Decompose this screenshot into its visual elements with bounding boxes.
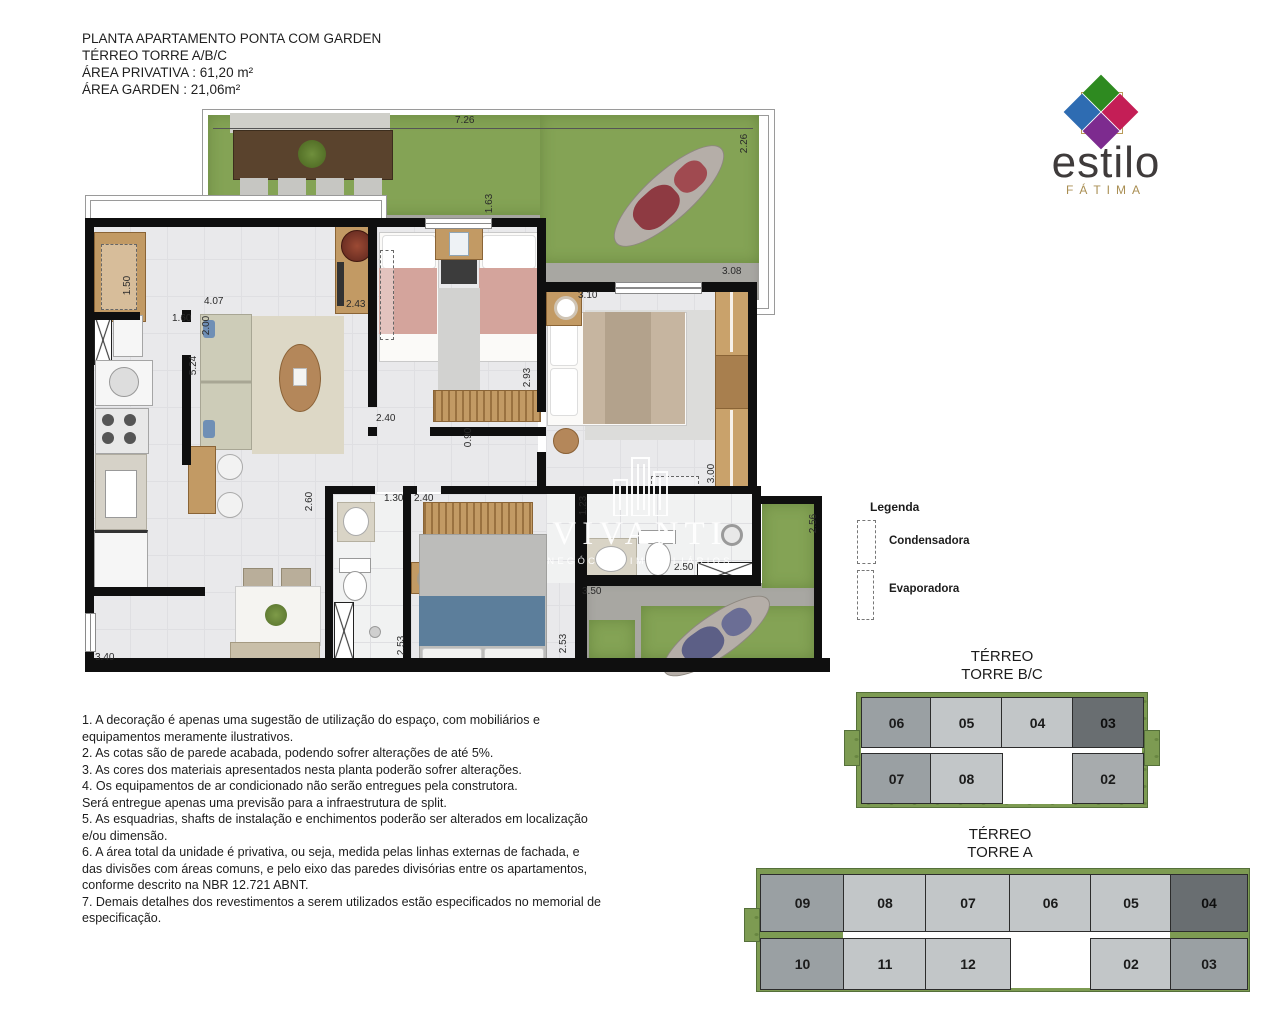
twin-bed-blanket xyxy=(479,268,537,334)
bedroom1-tv-bench xyxy=(441,260,477,284)
dimension-label: 1.63 xyxy=(484,194,495,213)
wall xyxy=(760,496,822,504)
unit-05: 05 xyxy=(1090,874,1172,932)
plan-private-area: ÁREA PRIVATIVA : 61,20 m² xyxy=(82,64,381,81)
dimension-label: 3.40 xyxy=(95,652,114,663)
dimension-label: 2.53 xyxy=(558,634,569,653)
unit-07: 07 xyxy=(861,753,932,804)
dimension-label: 3.08 xyxy=(722,266,741,277)
vivanti-building-icon xyxy=(609,450,671,516)
wardrobe-divider xyxy=(730,292,733,352)
twin-bed-pillow xyxy=(482,235,536,269)
dimension-label: 3.50 xyxy=(582,586,601,597)
evaporadora-symbol xyxy=(857,570,874,620)
keyplan-bc-grass-tab xyxy=(1144,730,1160,766)
wall xyxy=(587,575,761,586)
keyplan-bc-corridor-core xyxy=(1001,746,1072,804)
unit-06: 06 xyxy=(861,697,932,748)
wall xyxy=(325,486,333,668)
unit-03: 03 xyxy=(1170,938,1248,990)
dimension-label: 2.93 xyxy=(522,368,533,387)
unit-09: 09 xyxy=(760,874,845,932)
wall xyxy=(377,218,425,227)
keyplan-a-title2: TORRE A xyxy=(925,844,1075,861)
dimension-label: 5.24 xyxy=(188,356,199,375)
master-pillow xyxy=(550,368,578,416)
condensadora-symbol xyxy=(857,520,876,564)
wall xyxy=(85,658,830,672)
wardrobe-shelf-section xyxy=(715,355,750,409)
dimension-label: 4.07 xyxy=(204,296,223,307)
brand-name: estilo xyxy=(1046,138,1166,188)
laundry-sink xyxy=(113,315,143,357)
wall xyxy=(368,427,377,436)
nightstand-tablet xyxy=(449,232,469,256)
dimension-label: 0.90 xyxy=(463,428,474,447)
wall xyxy=(85,218,94,613)
master-window xyxy=(615,282,702,294)
keyplan-a-grass-tab xyxy=(744,908,760,942)
wall xyxy=(93,312,140,320)
burner xyxy=(124,432,136,444)
keyplan-bc-title1: TÉRREO xyxy=(927,648,1077,665)
desk-stool xyxy=(217,492,243,518)
dimension-label: 3.10 xyxy=(578,290,597,301)
desk-stool xyxy=(217,454,243,480)
wall xyxy=(85,218,377,227)
garden2-grass-column xyxy=(762,504,814,588)
unit-11: 11 xyxy=(843,938,927,990)
floor-plan: 7.26 2.26 1.63 3.08 3.10 4.07 1.50 1.60 … xyxy=(85,110,830,675)
shaft-box xyxy=(94,315,112,365)
unit-07: 07 xyxy=(925,874,1011,932)
legend-title: Legenda xyxy=(870,500,919,514)
burner xyxy=(102,432,114,444)
wall xyxy=(537,226,546,282)
fridge xyxy=(94,530,148,590)
plan-title: PLANTA APARTAMENTO PONTA COM GARDEN xyxy=(82,30,381,47)
plan-floor: TÉRREO TORRE A/B/C xyxy=(82,47,381,64)
dimension-label: 2.43 xyxy=(346,299,365,310)
unit-03-highlighted: 03 xyxy=(1072,697,1144,748)
keyplan-bc-title2: TORRE B/C xyxy=(927,666,1077,683)
dimension-label: 2.00 xyxy=(201,316,212,335)
estilo-pinwheel-icon xyxy=(1069,80,1133,144)
wall xyxy=(430,427,546,436)
tv-panel xyxy=(337,262,344,306)
keyplan-a-corridor-core xyxy=(1009,930,1090,988)
disclaimer-notes: 1. A decoração é apenas uma sugestão de … xyxy=(82,712,647,927)
dimension-label: 1.50 xyxy=(122,276,133,295)
watermark-name: VIVANTI xyxy=(545,516,735,553)
burner xyxy=(124,414,136,426)
dimension-label: 2.56 xyxy=(808,514,819,533)
dimension-label: 2.26 xyxy=(739,134,750,153)
dimension-label: 1.60 xyxy=(172,313,191,324)
brand-subname: FÁTIMA xyxy=(1058,183,1154,197)
keyplan-bc-grass-tab xyxy=(844,730,860,766)
dimension-label: 2.53 xyxy=(396,636,407,655)
bed2-blanket xyxy=(419,596,545,646)
bedroom1-shelf xyxy=(433,390,541,422)
unit-12: 12 xyxy=(925,938,1011,990)
unit-02: 02 xyxy=(1072,753,1144,804)
plan-header: PLANTA APARTAMENTO PONTA COM GARDEN TÉRR… xyxy=(82,30,381,98)
dimension-label: 7.26 xyxy=(455,115,474,126)
coffee-table-tray xyxy=(293,368,307,386)
bath1-toilet-bowl xyxy=(343,571,367,601)
keyplan-a-title1: TÉRREO xyxy=(925,826,1075,843)
side-desk xyxy=(188,446,216,514)
master-throw xyxy=(605,312,651,424)
legend-item-label: Evaporadora xyxy=(889,583,959,595)
wall xyxy=(537,282,546,412)
entry-door-opening xyxy=(85,613,96,652)
dimension-label: 2.60 xyxy=(304,492,315,511)
wall xyxy=(748,282,757,494)
dimension-line xyxy=(213,128,753,129)
wall xyxy=(368,227,377,407)
wall xyxy=(93,587,205,596)
vivanti-watermark: VIVANTI NEGÓCIOS IMOBILIÁRIOS xyxy=(545,450,735,567)
unit-08: 08 xyxy=(930,753,1003,804)
washer-drum xyxy=(109,367,139,397)
unit-02: 02 xyxy=(1090,938,1172,990)
dresser-decor xyxy=(554,296,578,320)
dimension-label: 1.30 xyxy=(384,493,403,504)
bath1-drain xyxy=(369,626,381,638)
dimension-label: 2.40 xyxy=(376,413,395,424)
sofa-pillow xyxy=(203,420,215,438)
legend-item-label: Condensadora xyxy=(889,535,970,547)
plan-garden-area: ÁREA GARDEN : 21,06m² xyxy=(82,81,381,98)
dining-plant xyxy=(265,604,287,626)
bedroom1-window xyxy=(425,218,492,229)
bath1-basin xyxy=(343,507,369,536)
garden2-grass-patch xyxy=(589,620,635,658)
kitchen-sink xyxy=(105,470,137,518)
unit-06: 06 xyxy=(1009,874,1092,932)
dimension-label: 2.40 xyxy=(414,493,433,504)
page: PLANTA APARTAMENTO PONTA COM GARDEN TÉRR… xyxy=(0,0,1280,1017)
evaporadora-box-bedroom1 xyxy=(380,250,394,340)
bath1-shower-glass xyxy=(334,602,354,660)
burner xyxy=(102,414,114,426)
unit-05: 05 xyxy=(930,697,1003,748)
unit-04: 04 xyxy=(1001,697,1074,748)
unit-04-highlighted: 04 xyxy=(1170,874,1248,932)
unit-08: 08 xyxy=(843,874,927,932)
watermark-tagline: NEGÓCIOS IMOBILIÁRIOS xyxy=(545,556,735,567)
unit-10: 10 xyxy=(760,938,845,990)
table-plant xyxy=(298,140,326,168)
